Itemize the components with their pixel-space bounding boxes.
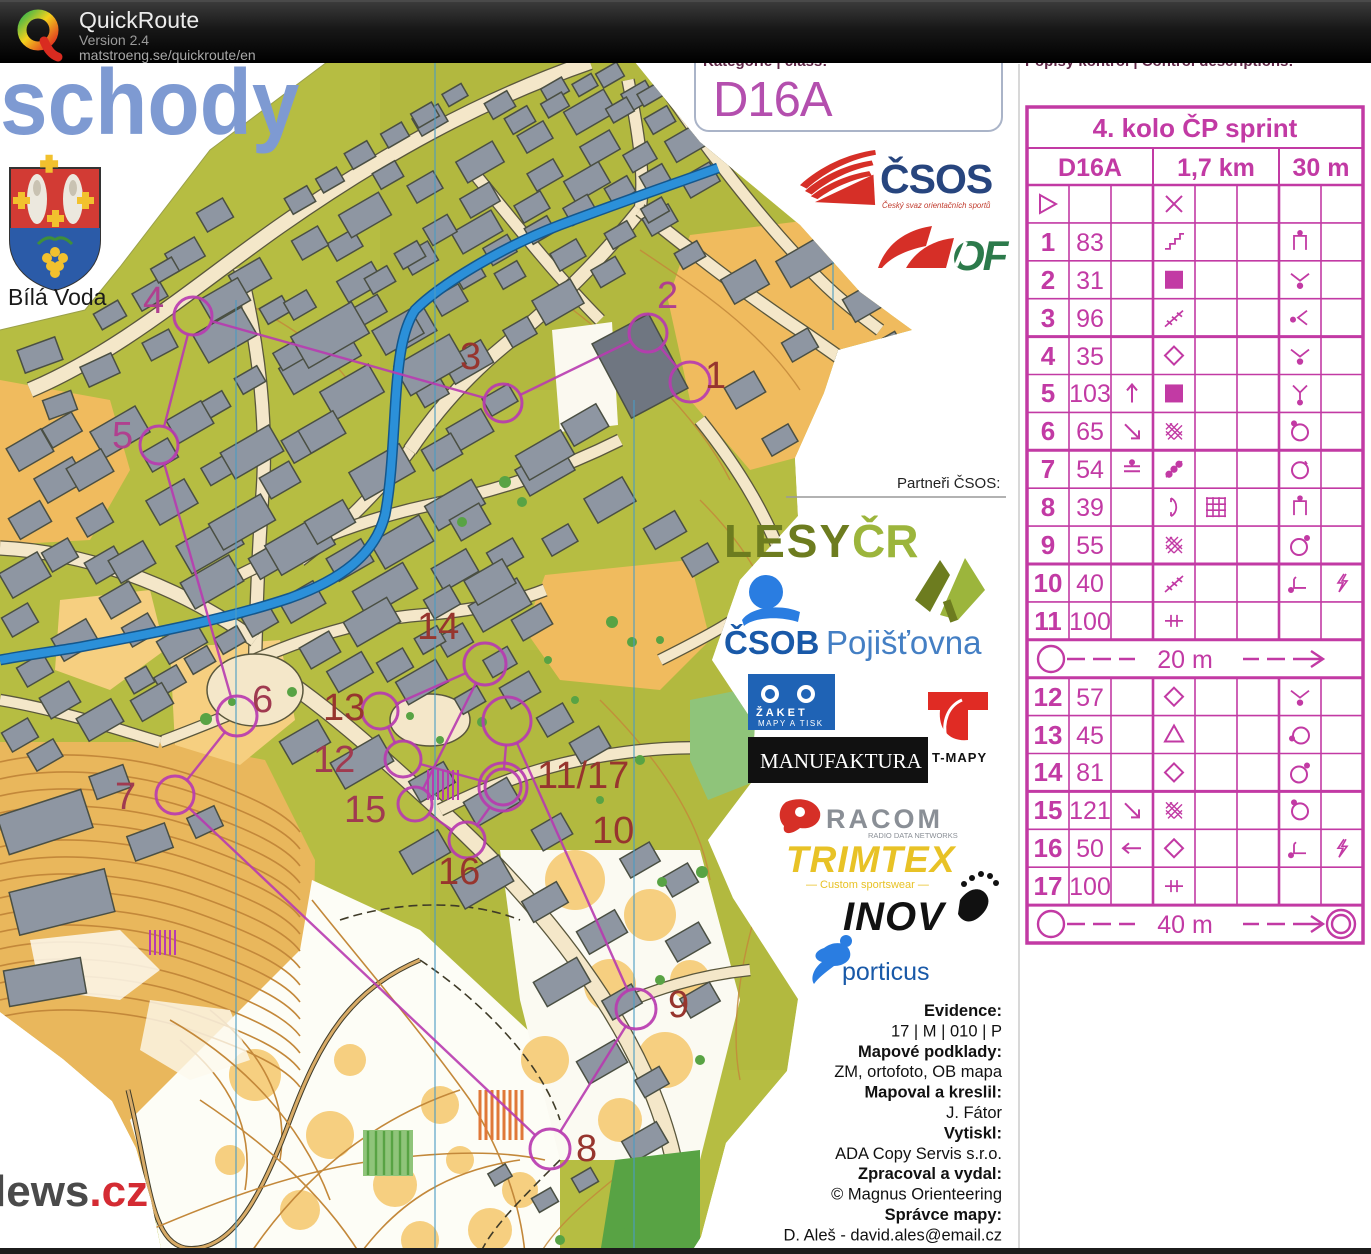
svg-text:50: 50	[1076, 835, 1104, 863]
svg-text:Version 2.4: Version 2.4	[79, 32, 149, 48]
svg-text:porticus: porticus	[842, 958, 930, 986]
svg-text:11: 11	[1034, 606, 1062, 636]
svg-text:81: 81	[1076, 759, 1104, 787]
svg-text:35: 35	[1076, 343, 1104, 371]
svg-text:Evidence:: Evidence:	[924, 1002, 1002, 1020]
svg-text:12: 12	[1034, 682, 1063, 712]
svg-text:QuickRoute: QuickRoute	[79, 7, 199, 33]
svg-text:Pojišťovna: Pojišťovna	[826, 624, 982, 661]
svg-text:83: 83	[1076, 229, 1104, 257]
svg-text:1: 1	[1041, 227, 1055, 257]
svg-text:6: 6	[252, 679, 273, 721]
svg-text:9: 9	[1041, 530, 1055, 560]
svg-text:40 m: 40 m	[1157, 911, 1213, 939]
svg-text:13: 13	[1034, 720, 1063, 750]
svg-text:TRIMTEX: TRIMTEX	[786, 839, 957, 880]
svg-text:45: 45	[1076, 722, 1104, 750]
svg-text:96: 96	[1076, 305, 1104, 333]
svg-text:13: 13	[323, 687, 365, 729]
svg-text:MANUFAKTURA: MANUFAKTURA	[760, 749, 923, 773]
svg-text:4: 4	[1041, 341, 1056, 371]
svg-text:D16A: D16A	[713, 73, 833, 127]
svg-text:2: 2	[657, 275, 678, 317]
svg-text:15: 15	[1034, 795, 1063, 825]
svg-text:lews.cz: lews.cz	[0, 1167, 148, 1216]
svg-text:ČSOB: ČSOB	[724, 623, 819, 661]
svg-text:54: 54	[1076, 456, 1104, 484]
svg-text:16: 16	[438, 851, 480, 893]
svg-text:3: 3	[1041, 303, 1055, 333]
svg-text:Bílá Voda: Bílá Voda	[8, 284, 107, 310]
svg-text:11/17: 11/17	[537, 755, 629, 797]
svg-text:40: 40	[1076, 570, 1104, 598]
svg-text:INOV: INOV	[843, 895, 947, 939]
svg-text:— Custom sportswear —: — Custom sportswear —	[806, 879, 929, 891]
svg-text:65: 65	[1076, 418, 1104, 446]
svg-text:4: 4	[143, 280, 164, 322]
svg-text:57: 57	[1076, 684, 1104, 712]
svg-text:20 m: 20 m	[1157, 646, 1213, 674]
svg-text:1,7 km: 1,7 km	[1177, 154, 1255, 182]
svg-text:ADA Copy Servis s.r.o.: ADA Copy Servis s.r.o.	[835, 1145, 1002, 1163]
svg-text:7: 7	[115, 776, 136, 818]
svg-text:17 | M | 010 | P: 17 | M | 010 | P	[891, 1022, 1002, 1040]
svg-text:5: 5	[1041, 378, 1055, 408]
svg-text:6: 6	[1041, 416, 1055, 446]
svg-text:103: 103	[1069, 380, 1111, 408]
svg-text:Partneři ČSOS:: Partneři ČSOS:	[897, 475, 1000, 492]
svg-text:55: 55	[1076, 532, 1104, 560]
svg-text:39: 39	[1076, 494, 1104, 522]
svg-text:Zpracoval a vydal:: Zpracoval a vydal:	[858, 1165, 1002, 1183]
svg-text:D16A: D16A	[1058, 154, 1122, 182]
svg-text:8: 8	[576, 1128, 597, 1170]
svg-text:schody: schody	[0, 50, 300, 154]
svg-text:T-MAPY: T-MAPY	[932, 750, 987, 765]
svg-text:Český svaz orientačních sportů: Český svaz orientačních sportů	[882, 201, 991, 210]
svg-text:LESY: LESY	[724, 515, 852, 567]
svg-text:ČSOS: ČSOS	[880, 156, 992, 202]
svg-text:9: 9	[668, 984, 689, 1026]
svg-text:14: 14	[1034, 757, 1063, 787]
svg-text:4. kolo ČP sprint: 4. kolo ČP sprint	[1093, 113, 1298, 143]
svg-text:10: 10	[1034, 568, 1063, 598]
svg-text:MAPY A TISK: MAPY A TISK	[758, 719, 824, 728]
svg-text:15: 15	[344, 789, 386, 831]
svg-text:31: 31	[1076, 267, 1104, 295]
svg-text:ZM, ortofoto, OB mapa: ZM, ortofoto, OB mapa	[834, 1063, 1003, 1081]
svg-text:16: 16	[1034, 833, 1063, 863]
svg-text:D. Aleš - david.ales@email.cz: D. Aleš - david.ales@email.cz	[784, 1226, 1003, 1244]
svg-text:RACOM: RACOM	[826, 804, 943, 834]
svg-text:Mapové podklady:: Mapové podklady:	[858, 1043, 1002, 1061]
svg-text:1: 1	[705, 355, 726, 397]
svg-text:10: 10	[592, 810, 634, 852]
svg-text:Vytiskl:: Vytiskl:	[944, 1124, 1002, 1142]
svg-text:J. Fátor: J. Fátor	[946, 1104, 1002, 1122]
svg-text:Správce mapy:: Správce mapy:	[885, 1206, 1002, 1224]
svg-text:121: 121	[1069, 797, 1111, 825]
svg-text:ČR: ČR	[852, 515, 918, 567]
svg-text:Mapoval a kreslil:: Mapoval a kreslil:	[864, 1084, 1002, 1102]
svg-text:2: 2	[1041, 265, 1055, 295]
svg-text:7: 7	[1041, 454, 1055, 484]
svg-text:12: 12	[313, 739, 355, 781]
svg-text:© Magnus Orienteering: © Magnus Orienteering	[831, 1186, 1002, 1204]
svg-text:17: 17	[1034, 871, 1063, 901]
svg-text:ŽAKET: ŽAKET	[756, 706, 808, 719]
svg-text:30 m: 30 m	[1293, 154, 1350, 182]
svg-text:100: 100	[1069, 608, 1111, 636]
svg-text:100: 100	[1069, 873, 1111, 901]
svg-text:14: 14	[417, 606, 459, 648]
svg-text:3: 3	[460, 336, 481, 378]
svg-text:5: 5	[112, 415, 133, 457]
svg-text:8: 8	[1041, 492, 1055, 522]
svg-text:matstroeng.se/quickroute/en: matstroeng.se/quickroute/en	[79, 47, 256, 63]
